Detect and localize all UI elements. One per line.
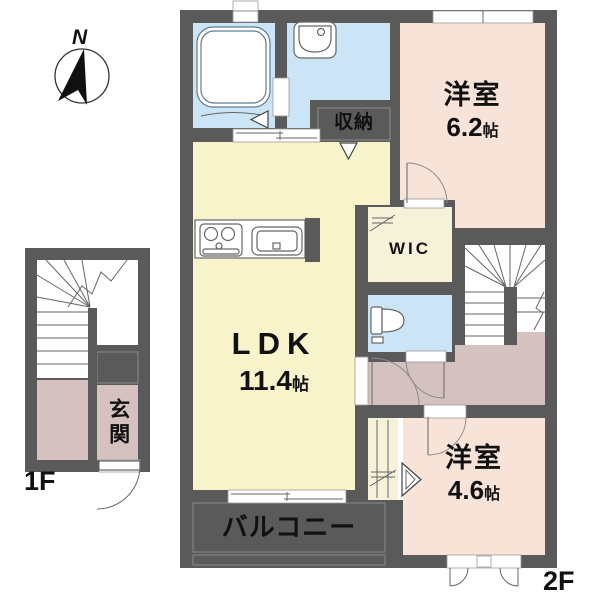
sliding-window-icon [433, 11, 533, 23]
washbasin-icon [294, 22, 336, 58]
casement-window-icon [447, 555, 521, 586]
ldk-name: LDK [193, 326, 355, 362]
western-2-size: 4.6帖 [403, 476, 545, 506]
room-label-ldk: LDK 11.4帖 [193, 326, 355, 397]
small-window-icon [233, 1, 258, 22]
kitchen-sink-icon [252, 227, 302, 255]
room-label-wic: WIC [368, 239, 452, 259]
room-label-storage: 収納 [318, 112, 390, 134]
room-label-balcony: バルコニー [193, 513, 385, 543]
bathtub-icon [197, 27, 270, 116]
room-entrance-hall [37, 380, 88, 460]
western-1-name: 洋室 [400, 80, 545, 111]
balcony-sliding-window-icon [228, 490, 346, 503]
kitchen-counter [195, 218, 320, 262]
compass-n-label: N [72, 26, 87, 50]
stove-icon [200, 224, 242, 256]
room-closet [368, 418, 398, 500]
western-2-name: 洋室 [403, 443, 545, 474]
room-label-western-1: 洋室 6.2帖 [400, 80, 545, 143]
washroom-sliding-door-icon [233, 129, 320, 142]
floor-label-1f: 1F [24, 466, 70, 497]
floor-plan: N 洋室 6.2帖 LDK 11.4帖 洋室 4.6帖 収納 WIC バルコニー… [0, 0, 600, 600]
western-1-size: 6.2帖 [400, 113, 545, 143]
ldk-size: 11.4帖 [193, 365, 355, 397]
room-label-western-2: 洋室 4.6帖 [403, 443, 545, 506]
floor-label-2f: 2F [543, 566, 593, 597]
room-label-entrance: 玄関 [97, 388, 138, 458]
entrance-door-icon [97, 460, 140, 509]
compass-icon [55, 49, 109, 105]
